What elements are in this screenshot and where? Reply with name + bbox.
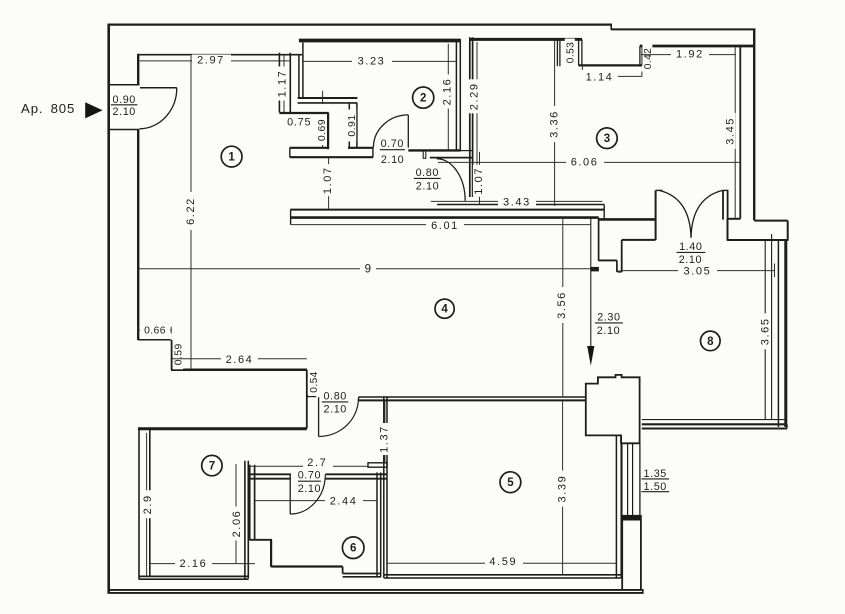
svg-text:0.66: 0.66 (144, 326, 166, 337)
svg-text:2.29: 2.29 (469, 82, 481, 110)
svg-text:2.10: 2.10 (323, 403, 346, 415)
svg-text:5: 5 (507, 477, 514, 489)
svg-text:3.65: 3.65 (760, 317, 772, 345)
svg-text:1.50: 1.50 (643, 481, 666, 493)
svg-text:6.22: 6.22 (185, 197, 197, 225)
svg-text:0.91: 0.91 (347, 114, 358, 136)
svg-text:1.40: 1.40 (679, 241, 702, 253)
svg-text:Ap. 805: Ap. 805 (21, 101, 75, 116)
svg-text:1.07: 1.07 (473, 167, 485, 195)
svg-text:0.75: 0.75 (287, 117, 311, 129)
svg-text:3.45: 3.45 (725, 117, 737, 145)
svg-text:2.9: 2.9 (142, 494, 154, 514)
svg-text:6.01: 6.01 (431, 220, 459, 232)
svg-text:9: 9 (365, 264, 371, 276)
svg-text:3: 3 (604, 133, 610, 145)
svg-text:2.10: 2.10 (112, 106, 135, 118)
svg-text:2.06: 2.06 (231, 510, 243, 538)
svg-text:2.16: 2.16 (179, 558, 207, 570)
svg-text:2: 2 (420, 93, 426, 105)
svg-text:0.80: 0.80 (323, 391, 346, 403)
svg-text:0.53: 0.53 (566, 42, 577, 63)
svg-text:0.70: 0.70 (381, 138, 404, 150)
svg-text:3.56: 3.56 (556, 291, 568, 319)
svg-text:1.37: 1.37 (379, 425, 391, 453)
svg-text:4.59: 4.59 (489, 556, 517, 568)
svg-text:2.97: 2.97 (197, 55, 225, 67)
svg-text:0.80: 0.80 (416, 167, 439, 179)
svg-text:3.39: 3.39 (556, 475, 568, 503)
svg-text:1: 1 (228, 152, 235, 164)
svg-text:3.23: 3.23 (358, 55, 386, 67)
svg-text:0.59: 0.59 (174, 343, 185, 365)
svg-text:2.30: 2.30 (597, 311, 620, 323)
svg-text:6: 6 (350, 543, 356, 555)
svg-text:3.43: 3.43 (503, 196, 531, 208)
svg-text:2.10: 2.10 (381, 154, 404, 166)
svg-text:2.16: 2.16 (442, 78, 454, 106)
svg-text:7: 7 (209, 461, 215, 473)
svg-text:2.10: 2.10 (416, 181, 439, 193)
svg-text:1.17: 1.17 (277, 70, 289, 98)
svg-text:2.7: 2.7 (307, 457, 327, 469)
svg-text:2.10: 2.10 (679, 254, 702, 266)
svg-text:3.36: 3.36 (548, 110, 560, 138)
svg-text:2.10: 2.10 (597, 325, 620, 337)
svg-text:0.54: 0.54 (309, 371, 320, 392)
svg-text:1.92: 1.92 (676, 48, 704, 60)
svg-text:4: 4 (441, 304, 448, 316)
svg-text:0.42: 0.42 (643, 48, 654, 69)
svg-text:8: 8 (707, 336, 714, 348)
svg-text:3.05: 3.05 (683, 266, 711, 278)
svg-text:2.10: 2.10 (298, 483, 321, 495)
svg-text:1.14: 1.14 (586, 71, 614, 83)
svg-text:0.70: 0.70 (298, 470, 321, 482)
svg-text:6.06: 6.06 (571, 156, 599, 168)
svg-text:2.64: 2.64 (226, 354, 254, 366)
svg-text:1.07: 1.07 (322, 166, 334, 194)
svg-text:0.69: 0.69 (317, 119, 328, 141)
svg-text:2.44: 2.44 (330, 495, 358, 507)
